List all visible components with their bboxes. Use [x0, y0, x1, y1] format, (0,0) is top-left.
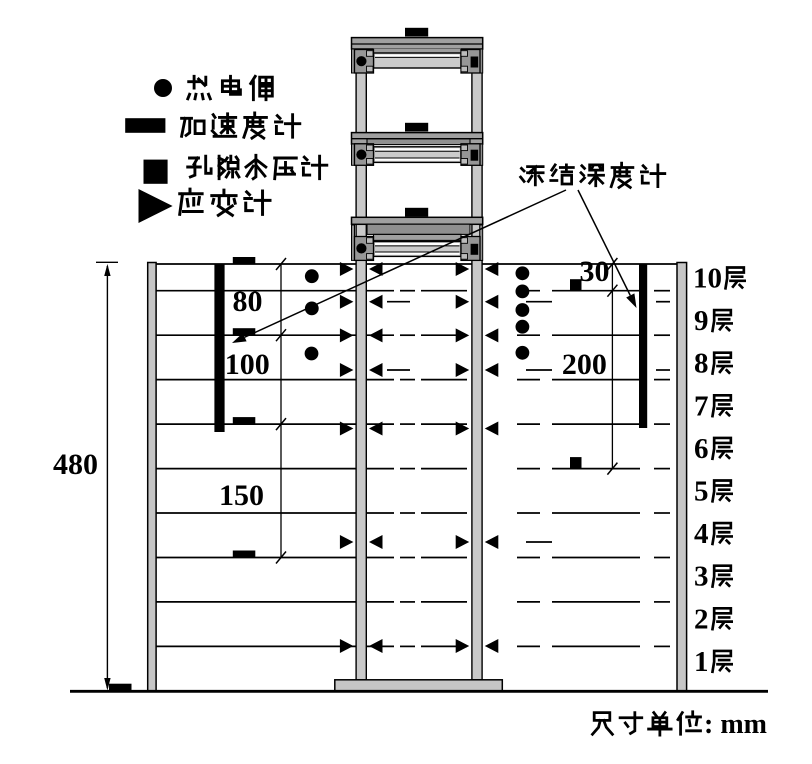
- svg-text:3: 3: [694, 561, 709, 593]
- svg-text:80: 80: [233, 285, 263, 318]
- svg-text:: mm: : mm: [704, 709, 767, 740]
- svg-text:5: 5: [694, 476, 709, 508]
- svg-text:4: 4: [694, 518, 709, 550]
- svg-text:2: 2: [694, 603, 709, 635]
- svg-text:8: 8: [694, 348, 709, 380]
- svg-text:6: 6: [694, 433, 709, 465]
- svg-text:30: 30: [580, 255, 610, 288]
- svg-text:150: 150: [219, 479, 264, 512]
- svg-text:100: 100: [225, 348, 270, 381]
- svg-text:480: 480: [53, 448, 98, 481]
- svg-text:200: 200: [562, 348, 607, 381]
- svg-text:9: 9: [694, 305, 709, 337]
- svg-text:10: 10: [693, 263, 722, 295]
- svg-text:7: 7: [694, 390, 709, 422]
- svg-text:1: 1: [694, 646, 709, 678]
